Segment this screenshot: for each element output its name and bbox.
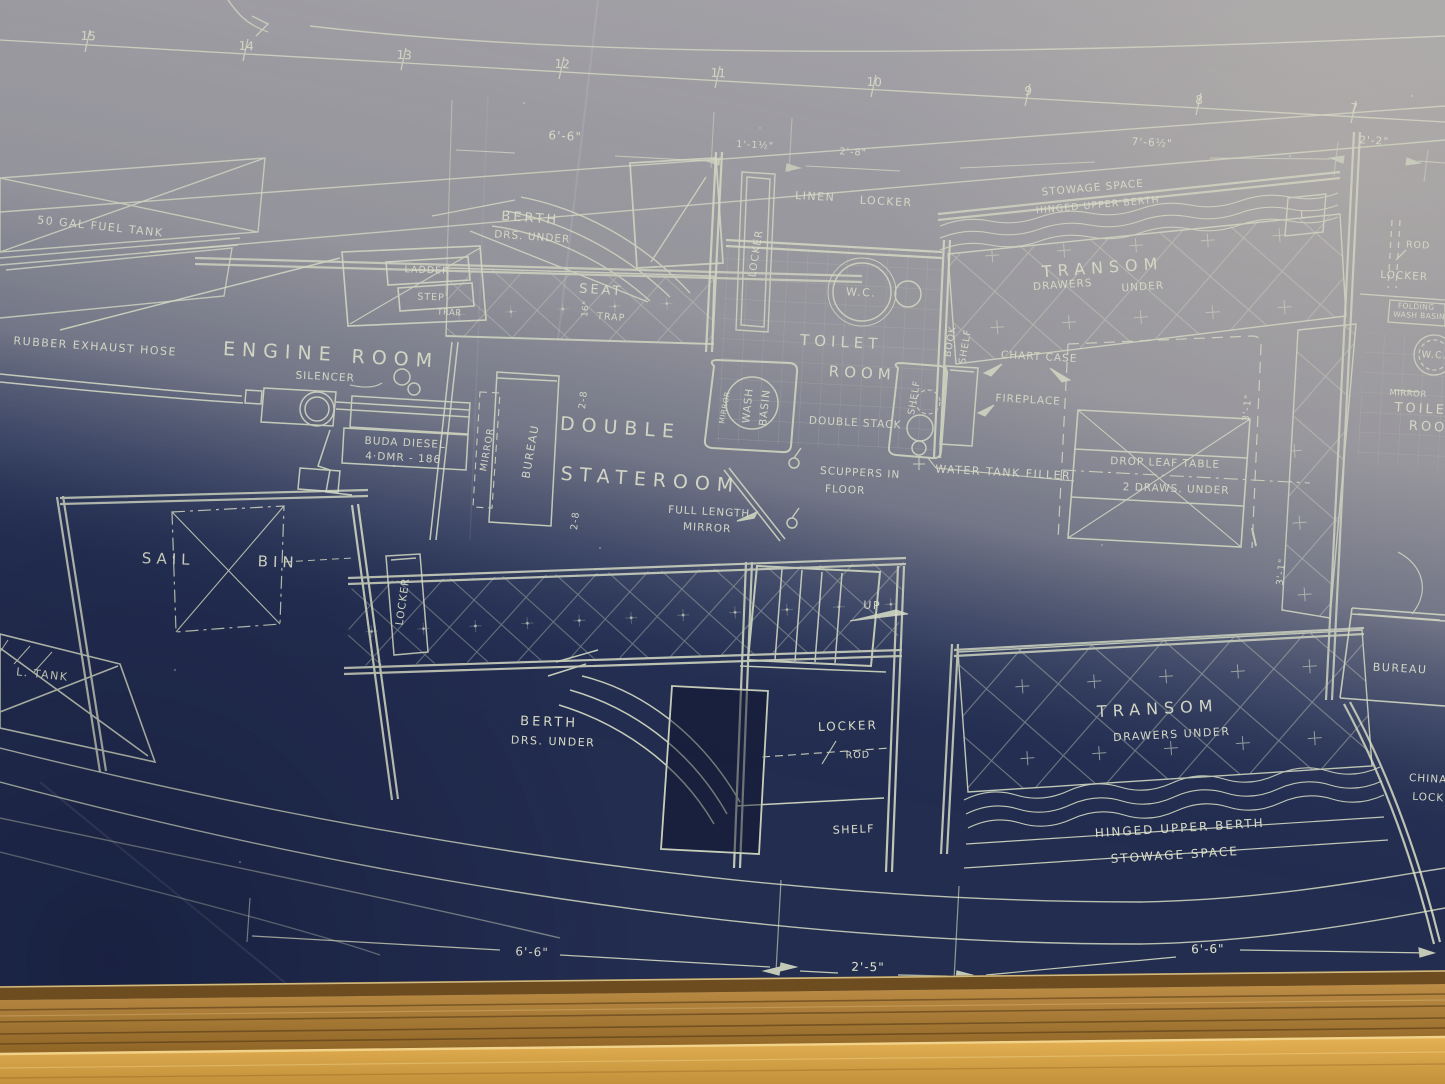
blueprint-plan: 15 14 13 12 11 10 9 8 7 6'-6" 1'-1½" 2'-… [0,0,1445,1084]
framed-blueprint-photo: 15 14 13 12 11 10 9 8 7 6'-6" 1'-1½" 2'-… [0,0,1445,1084]
glass-reflection-overlay [0,0,1445,1084]
picture-frame [0,970,1445,1084]
